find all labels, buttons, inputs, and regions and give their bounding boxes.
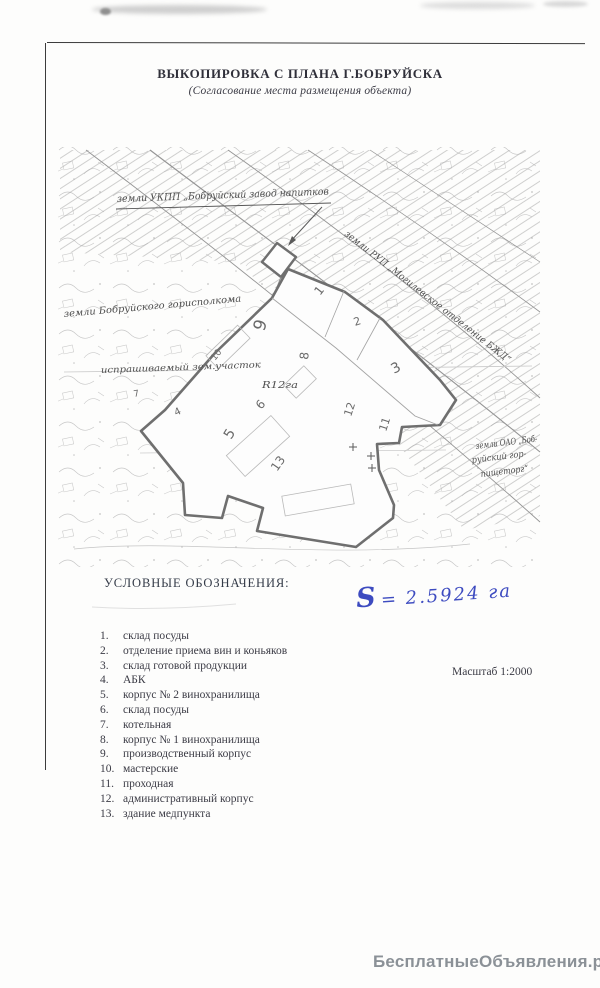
legend-item: 5.корпус № 2 винохранилища <box>100 688 420 703</box>
legend-item-label: склад посуды <box>123 629 189 644</box>
legend-item-label: мастерские <box>123 762 178 777</box>
parcel-number: 8 <box>297 351 312 360</box>
legend-item-label: административный корпус <box>123 792 254 807</box>
legend-item-number: 12. <box>100 792 123 807</box>
legend-item-label: котельная <box>123 718 171 733</box>
legend-item-label: склад посуды <box>123 703 189 718</box>
legend-item-label: отделение приема вин и коньяков <box>123 644 287 659</box>
site-plan-map: земли УКПП „Бобруйский завод напитков зе… <box>0 0 600 988</box>
legend-item-label: проходная <box>123 777 174 792</box>
legend-item: 2.отделение приема вин и коньяков <box>100 644 420 659</box>
legend-item: 12.административный корпус <box>100 792 420 807</box>
legend-item-number: 2. <box>100 644 123 659</box>
legend-item: 6.склад посуды <box>100 703 420 718</box>
legend-item: 13.здание медпункта <box>100 807 420 822</box>
legend-item: 10.мастерские <box>100 762 420 777</box>
legend-list: 1.склад посуды 2.отделение приема вин и … <box>100 629 420 821</box>
legend-item: 9.производственный корпус <box>100 747 420 762</box>
legend-item: 4.АБК <box>100 673 420 688</box>
legend-item-number: 1. <box>100 629 123 644</box>
legend-item-label: склад готовой продукции <box>123 659 247 674</box>
legend-item: 3.склад готовой продукции <box>100 659 420 674</box>
legend-item-label: АБК <box>123 673 146 688</box>
legend-item-number: 13. <box>100 807 123 822</box>
legend-item-number: 8. <box>100 733 123 748</box>
legend-item-number: 10. <box>100 762 123 777</box>
legend-item-number: 3. <box>100 659 123 674</box>
legend-item-number: 5. <box>100 688 123 703</box>
map-scale-note: Масштаб 1:2000 <box>452 666 532 678</box>
legend-item-label: здание медпункта <box>123 807 210 822</box>
legend-item: 8.корпус № 1 винохранилища <box>100 733 420 748</box>
scanned-page: ВЫКОПИРОВКА С ПЛАНА Г.БОБРУЙСКА (Согласо… <box>0 0 600 988</box>
map-label-plot-area-note: R12га <box>261 381 298 391</box>
legend-item-number: 4. <box>100 673 123 688</box>
legend-item-label: производственный корпус <box>123 747 251 762</box>
legend-item: 7.котельная <box>100 718 420 733</box>
legend-item: 1.склад посуды <box>100 629 420 644</box>
site-watermark: БесплатныеОбъявления.рф <box>373 952 600 972</box>
legend-heading: УСЛОВНЫЕ ОБОЗНАЧЕНИЯ: <box>104 576 290 591</box>
legend-item-number: 7. <box>100 718 123 733</box>
legend-item: 11.проходная <box>100 777 420 792</box>
legend-item-number: 6. <box>100 703 123 718</box>
legend-item-number: 9. <box>100 747 123 762</box>
legend-item-label: корпус № 1 винохранилища <box>123 733 260 748</box>
legend-item-label: корпус № 2 винохранилища <box>123 688 260 703</box>
legend-item-number: 11. <box>100 777 123 792</box>
area-note-s: S <box>355 582 377 614</box>
